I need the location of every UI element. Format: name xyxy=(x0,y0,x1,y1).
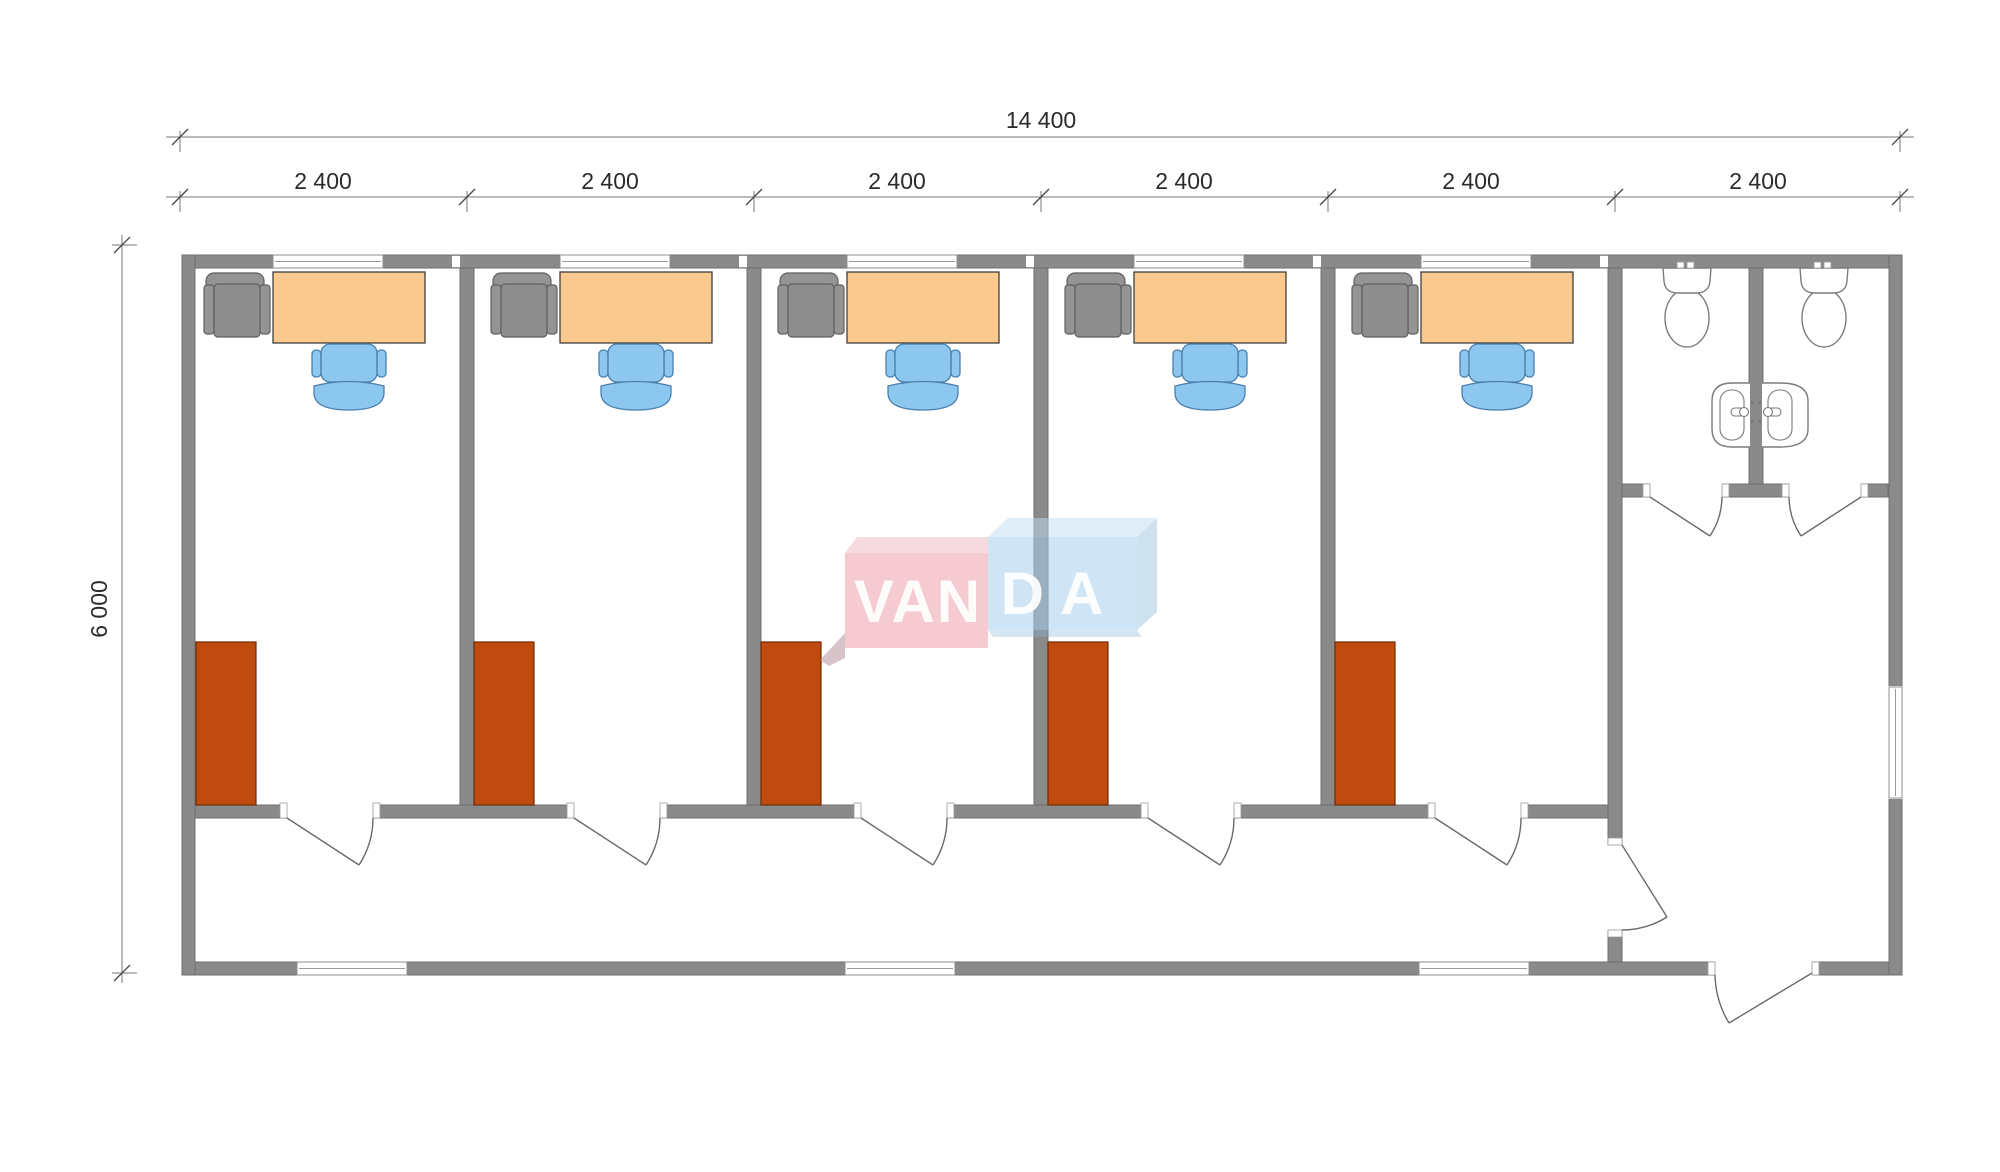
door-wc-right xyxy=(1801,497,1861,536)
window-room-2 xyxy=(560,255,670,268)
wardrobe-room-5 xyxy=(1335,642,1395,805)
dimension-depth: 6 000 xyxy=(86,235,137,983)
dimension-segments: 2 400 2 400 2 400 2 400 2 400 2 400 xyxy=(166,168,1914,212)
wardrobe-room-3 xyxy=(761,642,821,805)
window-room-5 xyxy=(1421,255,1531,268)
partition-2 xyxy=(747,268,761,818)
room-3-furniture xyxy=(778,272,999,410)
toilet-left xyxy=(1663,262,1711,347)
dimension-label-depth: 6 000 xyxy=(86,580,112,638)
dimension-label-segment-1: 2 400 xyxy=(294,168,352,194)
toilet-right xyxy=(1800,262,1848,347)
dimension-label-segment-3: 2 400 xyxy=(868,168,926,194)
sanitary-wall-central xyxy=(1749,268,1763,484)
wardrobe-room-4 xyxy=(1048,642,1108,805)
partition-1 xyxy=(460,268,474,818)
window-bottom-1 xyxy=(297,962,407,975)
dimension-label-segment-5: 2 400 xyxy=(1442,168,1500,194)
wall-right xyxy=(1889,255,1902,975)
wall-left xyxy=(182,255,195,975)
room-4-furniture xyxy=(1065,272,1286,410)
logo-pink-left-edge xyxy=(820,633,845,666)
dimension-label-segment-6: 2 400 xyxy=(1729,168,1787,194)
window-right-wall xyxy=(1888,686,1903,799)
logo-text-van: VAN xyxy=(854,568,982,635)
wardrobe-room-2 xyxy=(474,642,534,805)
room-1-furniture xyxy=(204,272,425,410)
window-room-4 xyxy=(1134,255,1244,268)
floor-plan-drawing: 14 400 2 400 2 400 2 400 2 400 2 400 2 4… xyxy=(0,0,2000,1172)
room-5-furniture xyxy=(1352,272,1573,410)
logo-blue-bottom-edge xyxy=(988,630,1142,637)
wall-bottom xyxy=(182,962,1902,975)
dimension-label-segment-2: 2 400 xyxy=(581,168,639,194)
door-wc-left xyxy=(1650,497,1710,536)
dimension-label-total: 14 400 xyxy=(1006,107,1076,133)
dimension-total-width: 14 400 xyxy=(166,107,1914,152)
dimension-label-segment-4: 2 400 xyxy=(1155,168,1213,194)
logo-blue-side-face xyxy=(1137,518,1157,630)
window-bottom-2 xyxy=(845,962,955,975)
wall-top xyxy=(182,255,1902,268)
wardrobes xyxy=(196,642,1395,805)
window-room-3 xyxy=(847,255,957,268)
room-2-furniture xyxy=(491,272,712,410)
wardrobe-room-1 xyxy=(196,642,256,805)
partition-4 xyxy=(1321,268,1335,818)
vestibule-door xyxy=(1607,838,1667,937)
logo-text-da: DA xyxy=(1001,560,1120,627)
window-bottom-3 xyxy=(1419,962,1529,975)
logo-blue-top-face xyxy=(988,518,1157,537)
window-room-1 xyxy=(273,255,383,268)
logo-pink-top-face xyxy=(845,537,988,553)
floor-plan-page: 14 400 2 400 2 400 2 400 2 400 2 400 2 4… xyxy=(0,0,2000,1172)
entrance-door xyxy=(1708,961,1819,1023)
